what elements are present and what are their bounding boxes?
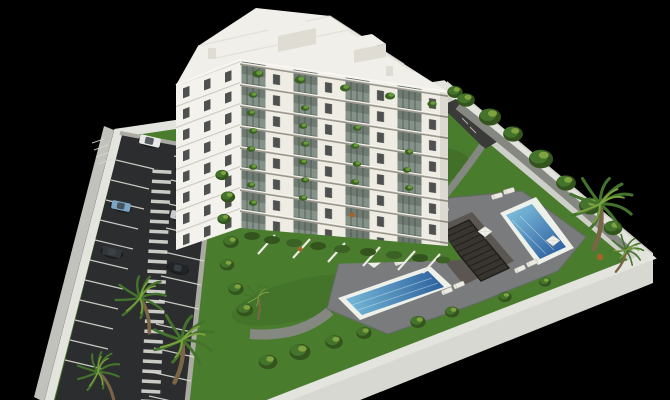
bush <box>215 170 228 180</box>
bush <box>220 259 234 270</box>
bush <box>498 292 511 302</box>
bush <box>325 335 343 349</box>
bush <box>445 306 459 317</box>
bush <box>290 344 311 360</box>
orange-shrub <box>597 254 603 260</box>
bush <box>223 236 238 248</box>
bush <box>356 327 371 339</box>
tree <box>556 175 576 190</box>
bush <box>217 214 230 224</box>
bush <box>228 283 243 295</box>
bush <box>259 355 278 369</box>
bush <box>221 191 235 202</box>
building-side-face <box>176 60 240 250</box>
orange-shrub <box>349 212 354 217</box>
bush <box>410 316 425 328</box>
render-canvas <box>0 0 670 400</box>
tree <box>479 109 501 126</box>
tree <box>457 93 475 107</box>
facade-edge-shade <box>440 91 448 246</box>
bush <box>237 304 254 317</box>
tree <box>503 126 523 141</box>
bush <box>539 277 551 286</box>
tree <box>529 150 553 169</box>
orange-shrub <box>298 247 303 252</box>
